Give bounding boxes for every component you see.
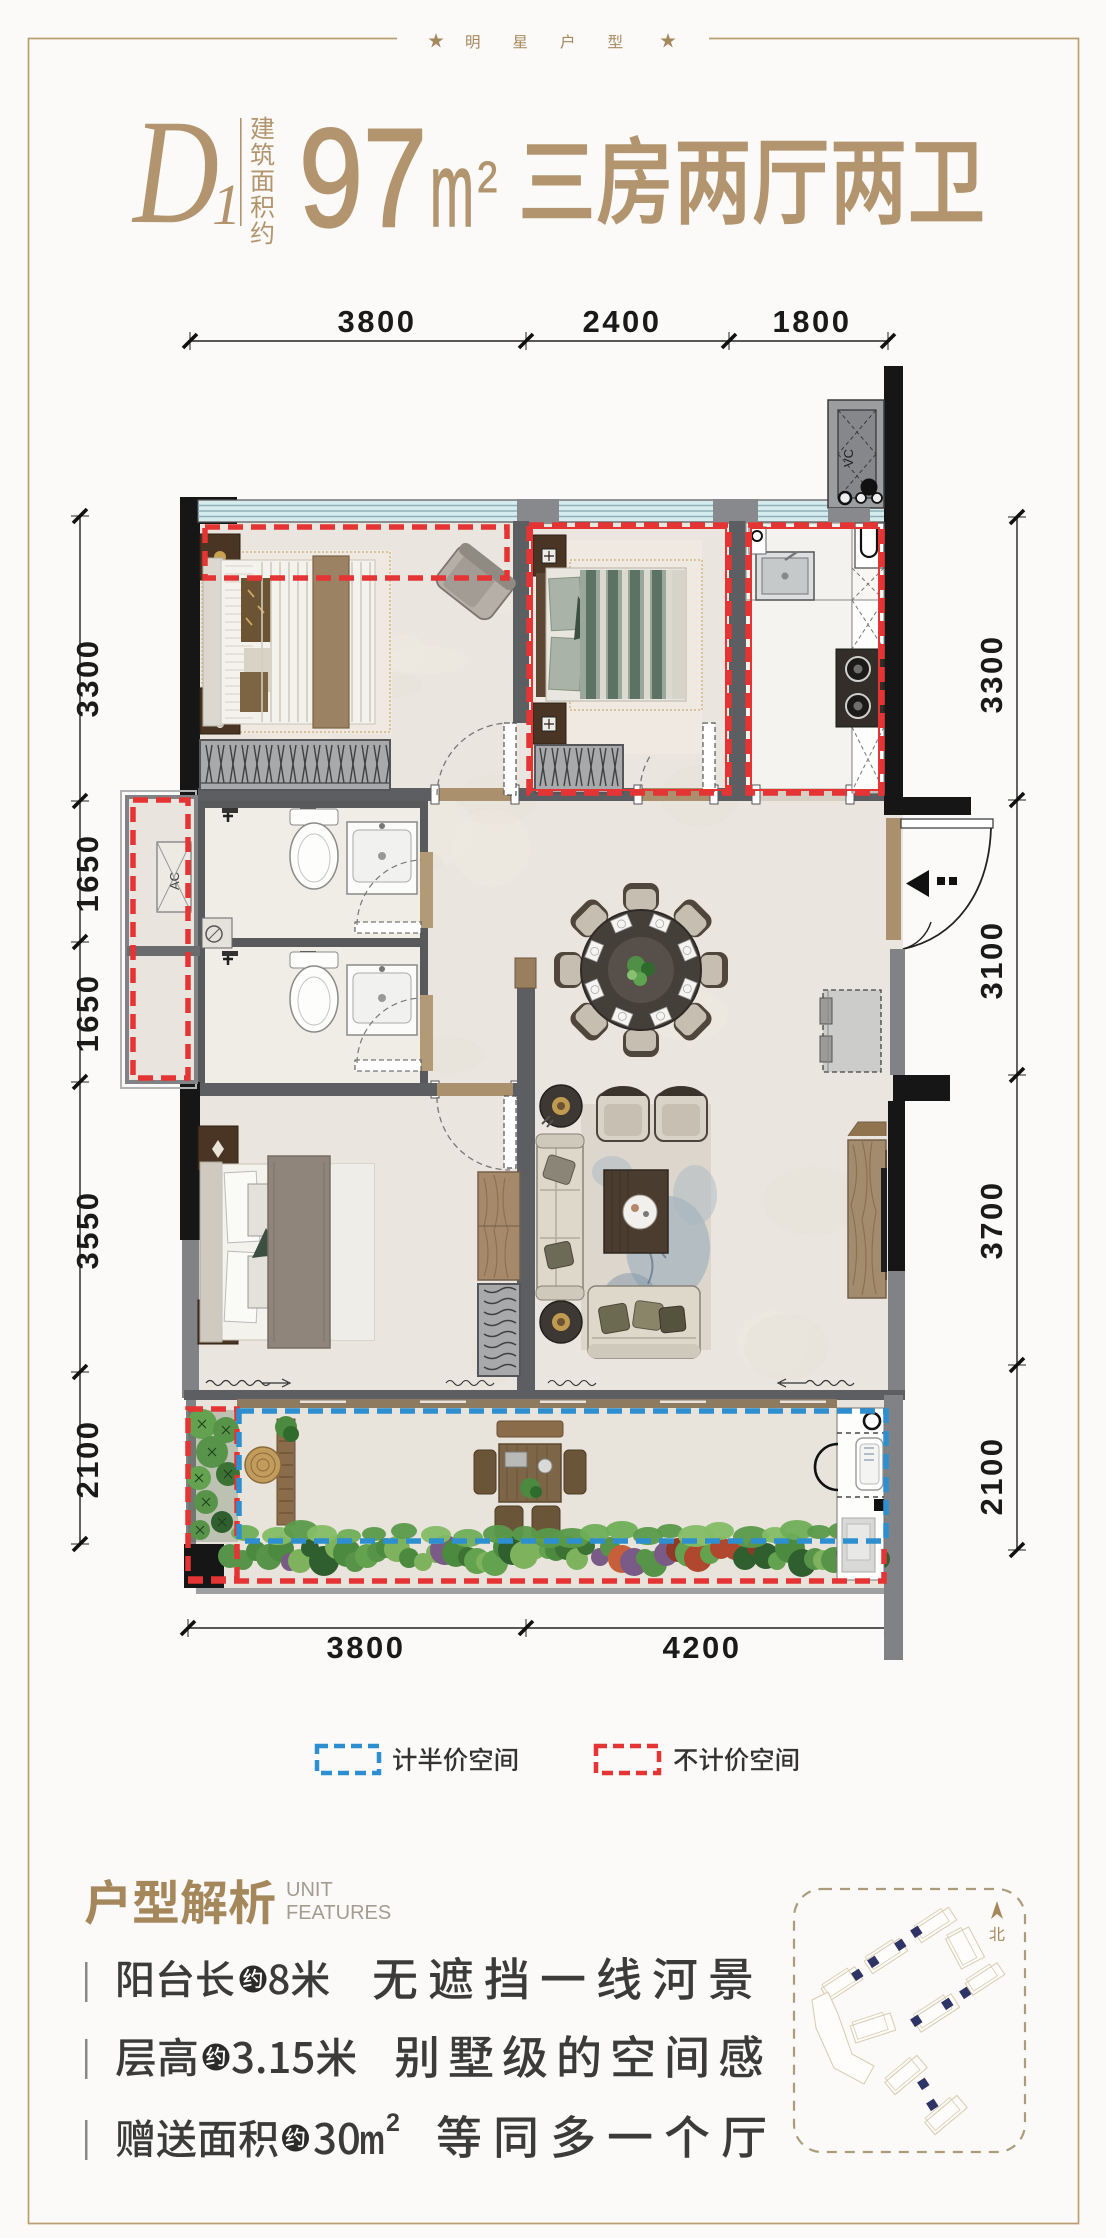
- svg-text:VC: VC: [841, 449, 856, 467]
- svg-text:D: D: [131, 89, 219, 255]
- svg-text:2: 2: [386, 2109, 400, 2137]
- svg-text:2: 2: [477, 153, 498, 202]
- svg-text:3100: 3100: [974, 921, 1009, 1000]
- svg-text:2100: 2100: [974, 1437, 1009, 1516]
- svg-text:4200: 4200: [663, 1630, 742, 1665]
- svg-text:1650: 1650: [70, 834, 105, 913]
- svg-text:2100: 2100: [70, 1420, 105, 1499]
- svg-text:UNIT: UNIT: [286, 1879, 333, 1901]
- svg-text:1800: 1800: [773, 304, 852, 339]
- svg-text:m: m: [359, 2116, 385, 2163]
- svg-text:3700: 3700: [974, 1181, 1009, 1260]
- svg-text:3800: 3800: [338, 304, 417, 339]
- svg-text:1: 1: [212, 172, 241, 237]
- svg-text:AC: AC: [167, 872, 182, 890]
- svg-text:2400: 2400: [583, 304, 662, 339]
- svg-text:FEATURES: FEATURES: [286, 1902, 391, 1924]
- svg-text:3800: 3800: [327, 1630, 406, 1665]
- svg-text:97: 97: [299, 99, 427, 256]
- svg-text:3300: 3300: [70, 639, 105, 718]
- svg-text:3550: 3550: [70, 1191, 105, 1270]
- svg-text:1650: 1650: [70, 974, 105, 1053]
- svg-text:m: m: [430, 131, 474, 249]
- svg-text:3300: 3300: [974, 635, 1009, 714]
